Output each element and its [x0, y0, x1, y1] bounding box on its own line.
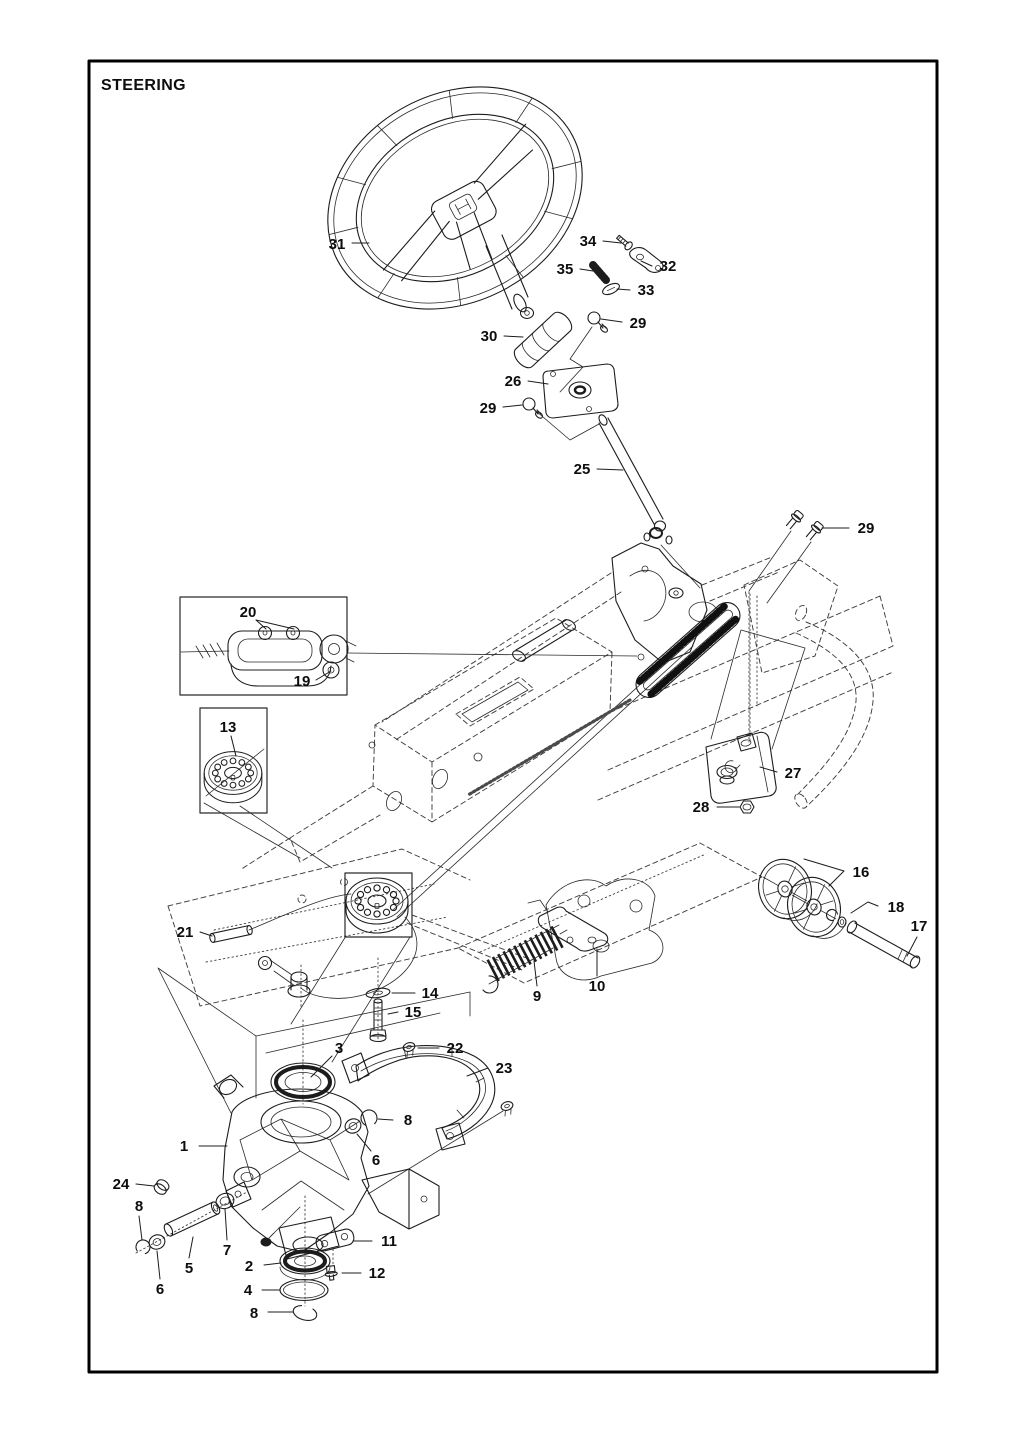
part-number-29: 29	[858, 520, 875, 537]
callout-leader-13	[231, 736, 236, 756]
part-number-25: 25	[574, 461, 591, 478]
callout-leader-5	[189, 1237, 193, 1258]
part-number-5: 5	[185, 1260, 193, 1277]
part-number-29: 29	[480, 400, 497, 417]
ball-stud-29-lower	[523, 398, 544, 419]
part-number-8: 8	[404, 1112, 412, 1129]
callout-leader-35	[580, 269, 593, 271]
part-number-32: 32	[660, 258, 677, 275]
part-number-22: 22	[447, 1040, 464, 1057]
part-number-14: 14	[422, 985, 439, 1002]
part-number-4: 4	[244, 1282, 253, 1299]
part-number-9: 9	[533, 988, 541, 1005]
clip-8-upper	[359, 1108, 380, 1129]
splined-shaft-30	[511, 309, 576, 372]
nut-24	[152, 1178, 171, 1197]
callout-leader-6	[157, 1251, 160, 1279]
page-title: STEERING	[101, 77, 186, 94]
spring-35	[593, 265, 606, 280]
callout-leader-17	[907, 937, 917, 956]
steering-wheel	[289, 44, 622, 353]
callout-leader-15	[388, 1012, 398, 1014]
callout-leader-25	[597, 469, 623, 470]
latch-lever-32	[630, 248, 663, 273]
part-number-34: 34	[580, 233, 597, 250]
page-border	[89, 61, 937, 1372]
part-number-6: 6	[156, 1281, 164, 1298]
callout-leader-26	[528, 381, 548, 384]
screw-12	[324, 1265, 337, 1280]
callout-leader-7	[225, 1209, 227, 1240]
callout-leader-29	[601, 319, 622, 322]
part-number-27: 27	[785, 765, 802, 782]
part-number-24: 24	[113, 1176, 130, 1193]
mount-plate-26	[543, 364, 618, 418]
callout-leader-8	[378, 1119, 393, 1120]
callout-leader-16	[804, 859, 844, 871]
callout-leader-9	[534, 961, 537, 986]
part-number-23: 23	[496, 1060, 513, 1077]
callout-leader-27	[760, 767, 777, 772]
plug-bolt	[261, 1233, 567, 1435]
washer-6-upper	[343, 1117, 363, 1136]
part-number-3: 3	[335, 1040, 343, 1057]
steering-cable-21	[209, 894, 532, 998]
ball-stud-29-upper	[588, 312, 609, 333]
screw-22b	[500, 1100, 515, 1116]
part-number-33: 33	[638, 282, 655, 299]
callout-leader-30	[504, 336, 523, 337]
main-pulley	[345, 873, 412, 937]
diagram-svg: STEERING	[0, 0, 1024, 1435]
callout-leader-33	[617, 289, 630, 290]
gearbox-housing-1	[214, 1075, 439, 1259]
part-number-18: 18	[888, 899, 905, 916]
parts-diagram-page: STEERING	[0, 0, 1024, 1435]
part-number-2: 2	[245, 1258, 253, 1275]
strap-23	[342, 1046, 495, 1150]
callout-leader-24	[136, 1184, 154, 1186]
tube-5	[163, 1201, 222, 1238]
part-number-31: 31	[329, 236, 346, 253]
plug-bolt-leader	[270, 1207, 300, 1237]
part-number-1: 1	[180, 1138, 188, 1155]
part-number-13: 13	[220, 719, 237, 736]
steering-pulleys-16	[751, 852, 849, 947]
callout-leader-18	[851, 902, 878, 913]
ring-4	[280, 1280, 328, 1301]
callout-leader-8	[139, 1216, 142, 1240]
part-number-7: 7	[223, 1242, 231, 1259]
part-number-10: 10	[589, 978, 606, 995]
part-number-26: 26	[505, 373, 522, 390]
part-number-29: 29	[630, 315, 647, 332]
axis-zigzag-lower	[536, 411, 599, 440]
callout-leader-2	[264, 1263, 281, 1265]
bolts-29-frame	[749, 509, 825, 603]
nut-28	[740, 801, 754, 813]
part-number-12: 12	[369, 1265, 386, 1282]
part-number-8: 8	[250, 1305, 258, 1322]
retainer-18	[824, 907, 846, 927]
part-number-17: 17	[911, 918, 928, 935]
part-number-30: 30	[481, 328, 498, 345]
part-number-28: 28	[693, 799, 710, 816]
part-number-6: 6	[372, 1152, 380, 1169]
part-number-16: 16	[853, 864, 870, 881]
callout-leader-16	[829, 871, 844, 886]
callout-leader-29	[503, 405, 522, 407]
callout-leader-34	[603, 241, 621, 243]
part-number-15: 15	[405, 1004, 422, 1021]
part-number-35: 35	[557, 261, 574, 278]
part-number-11: 11	[381, 1233, 397, 1250]
part-number-20: 20	[240, 604, 257, 621]
part-number-8: 8	[135, 1198, 143, 1215]
part-number-21: 21	[177, 924, 194, 941]
part-number-19: 19	[294, 673, 311, 690]
